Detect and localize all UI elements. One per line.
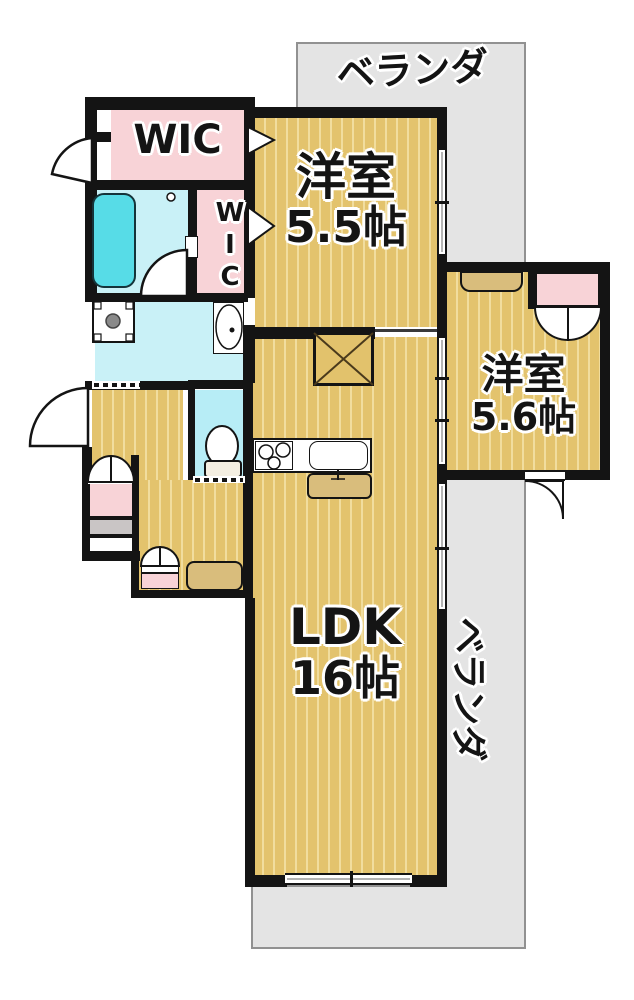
washer-drain bbox=[106, 314, 120, 328]
burner bbox=[259, 445, 273, 459]
window-tick bbox=[435, 201, 449, 204]
bedroom-b-name: 洋室 bbox=[447, 352, 600, 397]
wic-window-arc bbox=[52, 138, 92, 183]
hall-closet-door-left bbox=[88, 456, 111, 482]
pan-corner bbox=[126, 334, 133, 341]
ldk-size: 16帖 bbox=[253, 654, 437, 704]
vanity-drain bbox=[230, 328, 235, 333]
window-tick bbox=[435, 547, 449, 550]
entry-door-arc bbox=[30, 388, 88, 446]
pan-corner bbox=[94, 302, 101, 309]
hall-closet-door-right bbox=[111, 456, 134, 482]
ldk-name: LDK bbox=[253, 600, 437, 654]
sliding-opening bbox=[193, 476, 245, 483]
bedroom-a-size: 5.5帖 bbox=[255, 204, 437, 252]
bath-door-arc bbox=[141, 250, 187, 296]
pan-corner bbox=[126, 302, 133, 309]
vanity-basin bbox=[216, 305, 242, 349]
bedroom-b-label: 洋室 5.6帖 bbox=[447, 352, 600, 438]
floor-plan: ベランダ ベランダ WIC WIC 洋室 5.5帖 洋室 5.6帖 LDK 16… bbox=[0, 0, 634, 1000]
bedroom-b-size: 5.6帖 bbox=[447, 397, 600, 438]
wic-main-label: WIC bbox=[111, 119, 244, 162]
entry-closet-door-left bbox=[141, 547, 160, 566]
veranda-side-label: ベランダ bbox=[448, 604, 487, 774]
bedroom-a-name: 洋室 bbox=[255, 150, 437, 204]
window-tick bbox=[350, 871, 353, 887]
ldk-label: LDK 16帖 bbox=[253, 600, 437, 704]
wic-side-label: WIC bbox=[197, 196, 244, 296]
bedroom-b-door-arc bbox=[525, 481, 563, 519]
pan-corner bbox=[94, 334, 101, 341]
burner bbox=[276, 443, 290, 457]
burner bbox=[268, 457, 280, 469]
toilet-tank bbox=[205, 461, 241, 477]
shower-fixture bbox=[167, 193, 175, 201]
entry-closet-door-right bbox=[160, 547, 179, 566]
bedroom-b-closet-door-right bbox=[568, 307, 601, 340]
bedroom-b-closet-door-left bbox=[535, 307, 568, 340]
bedroom-a-label: 洋室 5.5帖 bbox=[255, 150, 437, 252]
